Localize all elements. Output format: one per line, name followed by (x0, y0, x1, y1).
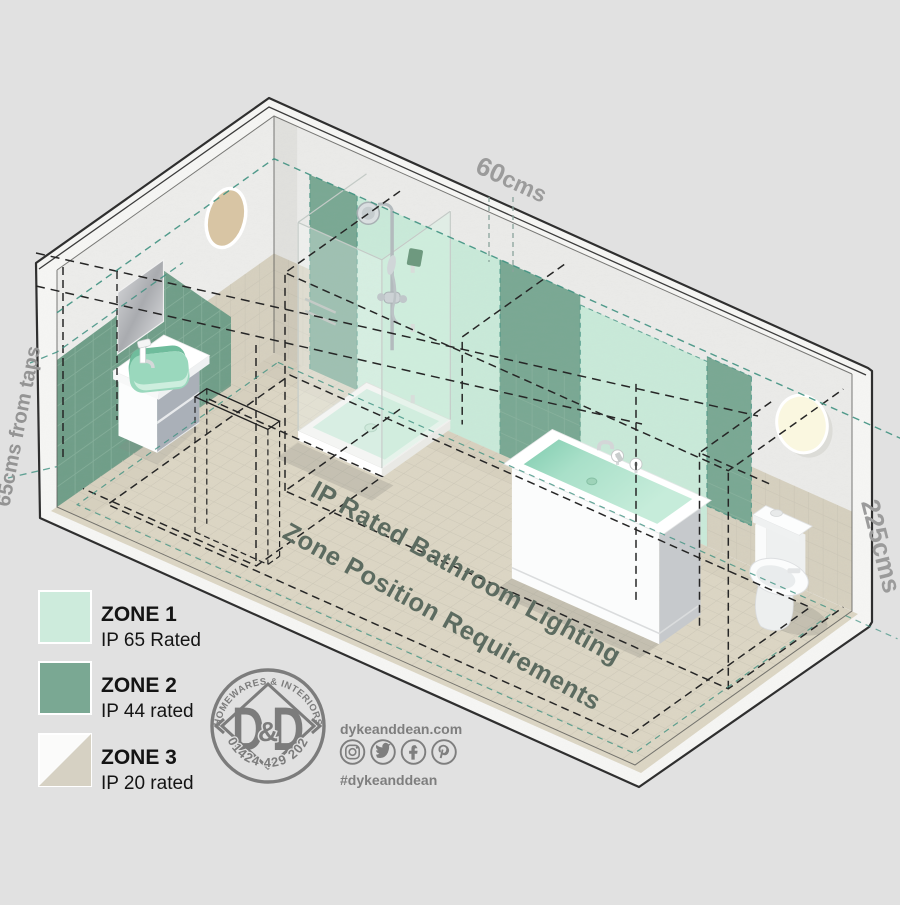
svg-text:&: & (258, 716, 278, 747)
svg-text:ZONE 1: ZONE 1 (101, 603, 177, 626)
svg-text:IP 65 Rated: IP 65 Rated (101, 630, 201, 651)
svg-text:IP 20 rated: IP 20 rated (101, 773, 194, 794)
svg-text:ZONE 2: ZONE 2 (101, 674, 177, 697)
svg-text:dykeanddean.com: dykeanddean.com (340, 721, 462, 737)
svg-text:#dykeanddean: #dykeanddean (340, 772, 437, 788)
svg-text:ZONE 3: ZONE 3 (101, 746, 177, 769)
svg-text:IP 44 rated: IP 44 rated (101, 701, 194, 722)
